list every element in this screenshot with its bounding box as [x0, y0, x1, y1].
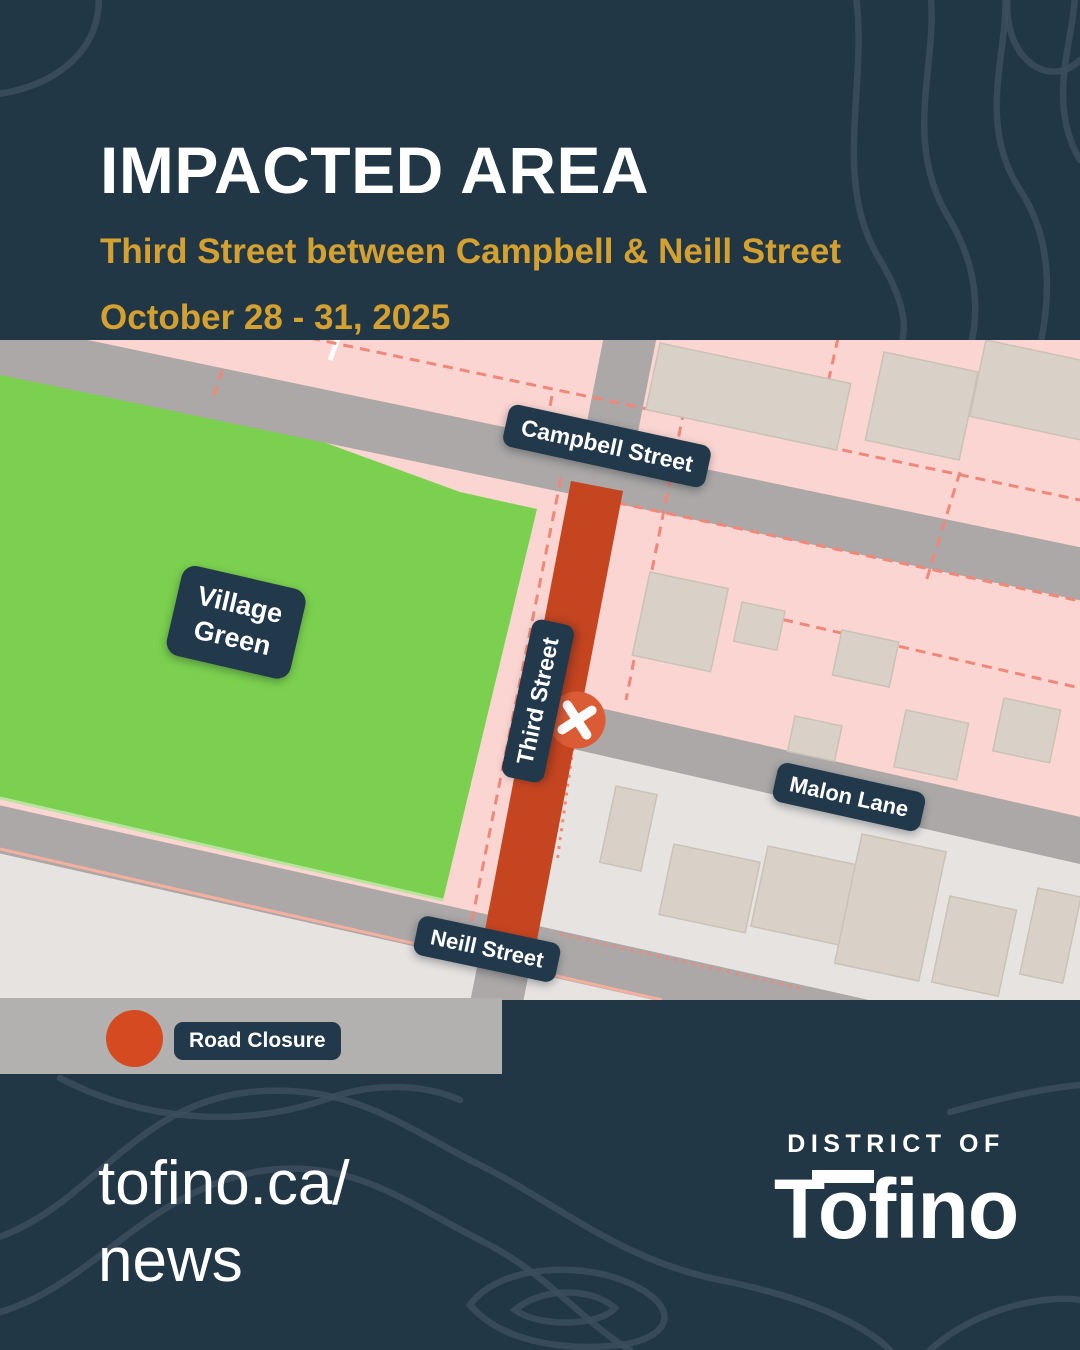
logo-t-crossbar [812, 1170, 874, 1183]
url-line-1: tofino.ca/ [98, 1146, 350, 1223]
building [865, 352, 978, 460]
building [894, 710, 969, 780]
contour-line [1063, 0, 1080, 160]
contour-line [0, 0, 99, 95]
building [632, 572, 728, 672]
logo-tofino-wordmark: Tofino [716, 1167, 1076, 1251]
district-of-tofino-logo: DISTRICT OF Tofino [716, 1130, 1076, 1251]
url-line-2: news [98, 1223, 350, 1300]
logo-text: Tofino [774, 1162, 1018, 1256]
contour-line [924, 0, 975, 348]
contour-line [854, 0, 904, 348]
header: IMPACTED AREA Third Street between Campb… [100, 136, 841, 339]
contour-line [930, 1299, 1080, 1350]
building [993, 698, 1061, 763]
logo-district-of-text: DISTRICT OF [716, 1130, 1076, 1159]
page-title: IMPACTED AREA [100, 136, 841, 205]
contour-line [60, 1078, 460, 1117]
road-closure-swatch-icon [106, 1010, 163, 1067]
impacted-area-subtitle: Third Street between Campbell & Neill St… [100, 231, 841, 273]
road-closure-poster: { "poster": { "header": { "title": "IMPA… [0, 0, 1080, 1350]
legend-road-closure-label: Road Closure [174, 1022, 341, 1060]
contour-line [470, 1270, 664, 1347]
website-url: tofino.ca/ news [98, 1146, 350, 1300]
contour-line [950, 1085, 1080, 1112]
closure-date-range: October 28 - 31, 2025 [100, 297, 841, 339]
building [734, 602, 785, 650]
legend: Road Closure [0, 998, 502, 1074]
